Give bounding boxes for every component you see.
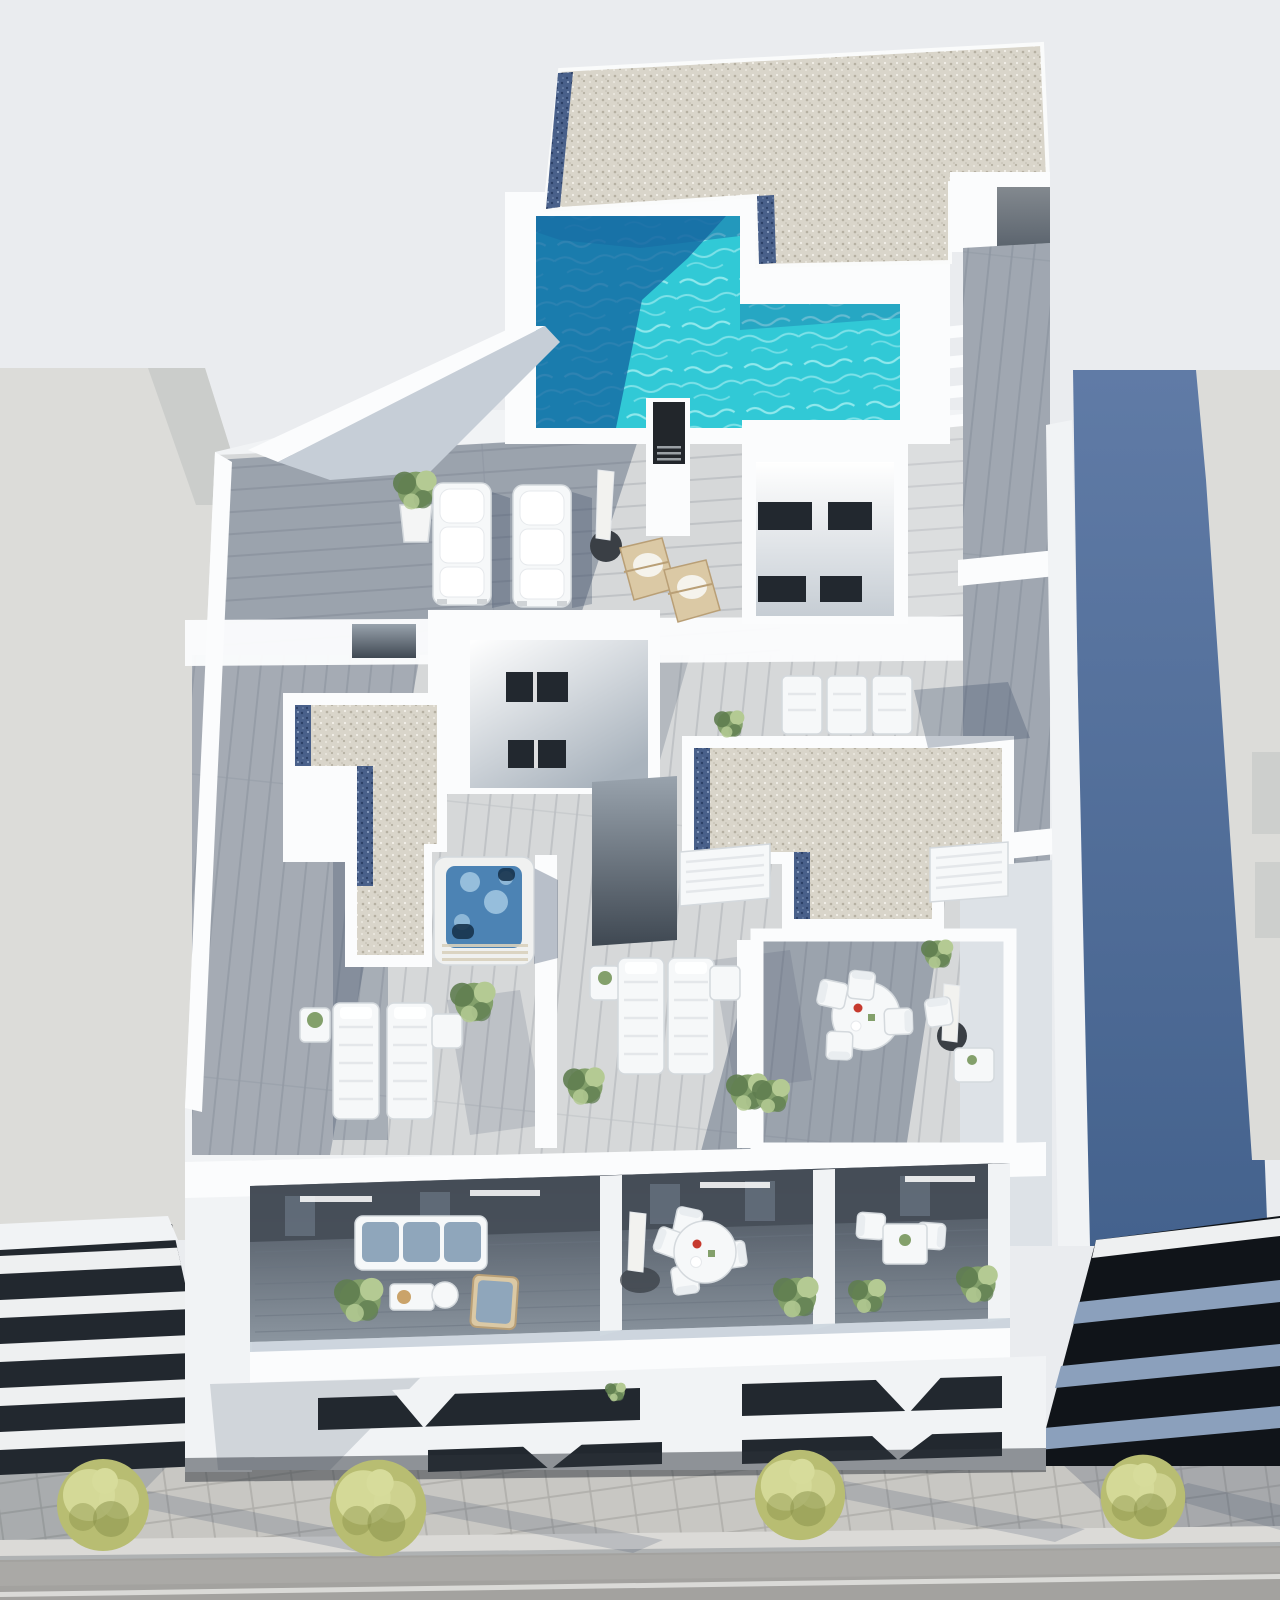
low-table bbox=[954, 1048, 994, 1082]
table-deco-green bbox=[899, 1234, 911, 1246]
chimney-vent bbox=[653, 402, 685, 464]
side-table bbox=[710, 966, 740, 1000]
table-plate bbox=[851, 1021, 861, 1031]
render-canvas bbox=[0, 0, 1280, 1600]
vent-slat bbox=[657, 458, 681, 461]
mini-lounger-row bbox=[782, 676, 912, 734]
sun-lounger bbox=[668, 958, 714, 1074]
terrace-chair bbox=[924, 996, 954, 1027]
neighbor-recess bbox=[1255, 862, 1280, 938]
lounge-chair bbox=[470, 1275, 519, 1330]
roof-chimney bbox=[646, 398, 690, 536]
tub-seat bbox=[498, 868, 515, 881]
table-deco-green bbox=[868, 1014, 875, 1021]
side-table bbox=[432, 1014, 462, 1048]
vent-slat bbox=[657, 446, 681, 449]
lounger-shadow bbox=[572, 492, 592, 608]
sofa-cushion bbox=[444, 1222, 481, 1262]
street-tree bbox=[57, 1459, 149, 1551]
sofa-cushion bbox=[403, 1222, 440, 1262]
plant-pot bbox=[400, 505, 432, 542]
lounger-shadow bbox=[492, 492, 510, 608]
blue-gravel-strip bbox=[757, 195, 776, 264]
window-slot bbox=[820, 576, 862, 602]
hot-tub-shadow bbox=[534, 868, 558, 964]
balcony-divider bbox=[813, 1169, 835, 1330]
louver-shutter bbox=[680, 844, 770, 906]
street-tree bbox=[755, 1450, 845, 1540]
tub-base-slat bbox=[442, 944, 528, 947]
window-mullion bbox=[534, 740, 538, 768]
vent-slat bbox=[657, 452, 681, 455]
table-plant bbox=[598, 971, 612, 985]
roof-hatch bbox=[352, 624, 416, 658]
sofa-cushion bbox=[362, 1222, 399, 1262]
street-tree bbox=[330, 1460, 427, 1557]
blue-gravel-strip bbox=[357, 766, 373, 886]
tub-seat bbox=[452, 924, 474, 939]
window-slot bbox=[758, 576, 806, 602]
balcony-level bbox=[250, 1163, 1010, 1386]
round-side-table bbox=[432, 1282, 458, 1308]
blue-gravel-strip bbox=[694, 748, 710, 852]
round-dining-table bbox=[674, 1221, 736, 1283]
water-foam bbox=[460, 872, 480, 892]
dining-chair bbox=[856, 1212, 886, 1240]
water-foam bbox=[484, 890, 508, 914]
table-deco-red bbox=[693, 1240, 702, 1249]
sun-lounger bbox=[513, 485, 571, 607]
table-plate bbox=[691, 1257, 702, 1268]
courtyard-slot bbox=[592, 776, 677, 946]
street-tree bbox=[1101, 1455, 1186, 1540]
table-deco-green bbox=[967, 1055, 977, 1065]
sun-lounger bbox=[333, 1003, 379, 1119]
blue-gravel-strip bbox=[295, 705, 311, 766]
dining-chair bbox=[816, 979, 849, 1010]
dining-chair bbox=[847, 970, 876, 1001]
balcony-divider bbox=[600, 1175, 622, 1336]
tub-base-slat bbox=[442, 958, 528, 961]
lightwell-north bbox=[742, 420, 908, 624]
sun-lounger bbox=[618, 958, 664, 1074]
table-deco-green bbox=[708, 1250, 715, 1257]
coffee-table bbox=[390, 1284, 434, 1310]
neighbor-recess bbox=[1252, 752, 1280, 834]
blue-gravel-strip bbox=[794, 852, 810, 919]
stair-door bbox=[997, 187, 1050, 249]
table-tray bbox=[397, 1290, 411, 1304]
table-plant bbox=[307, 1012, 323, 1028]
hot-tub bbox=[434, 857, 558, 965]
louver-shutter bbox=[930, 842, 1008, 902]
dining-chair bbox=[826, 1031, 853, 1060]
tub-base-slat bbox=[442, 951, 528, 954]
table-deco-red bbox=[854, 1004, 863, 1013]
dining-chair bbox=[884, 1008, 913, 1035]
sun-lounger bbox=[387, 1003, 433, 1119]
parasol-canopy bbox=[628, 1212, 646, 1272]
window-slot bbox=[758, 502, 812, 530]
sun-lounger bbox=[433, 483, 491, 605]
window-mullion bbox=[533, 672, 537, 702]
window-slot bbox=[828, 502, 872, 530]
architectural-render bbox=[0, 0, 1280, 1600]
